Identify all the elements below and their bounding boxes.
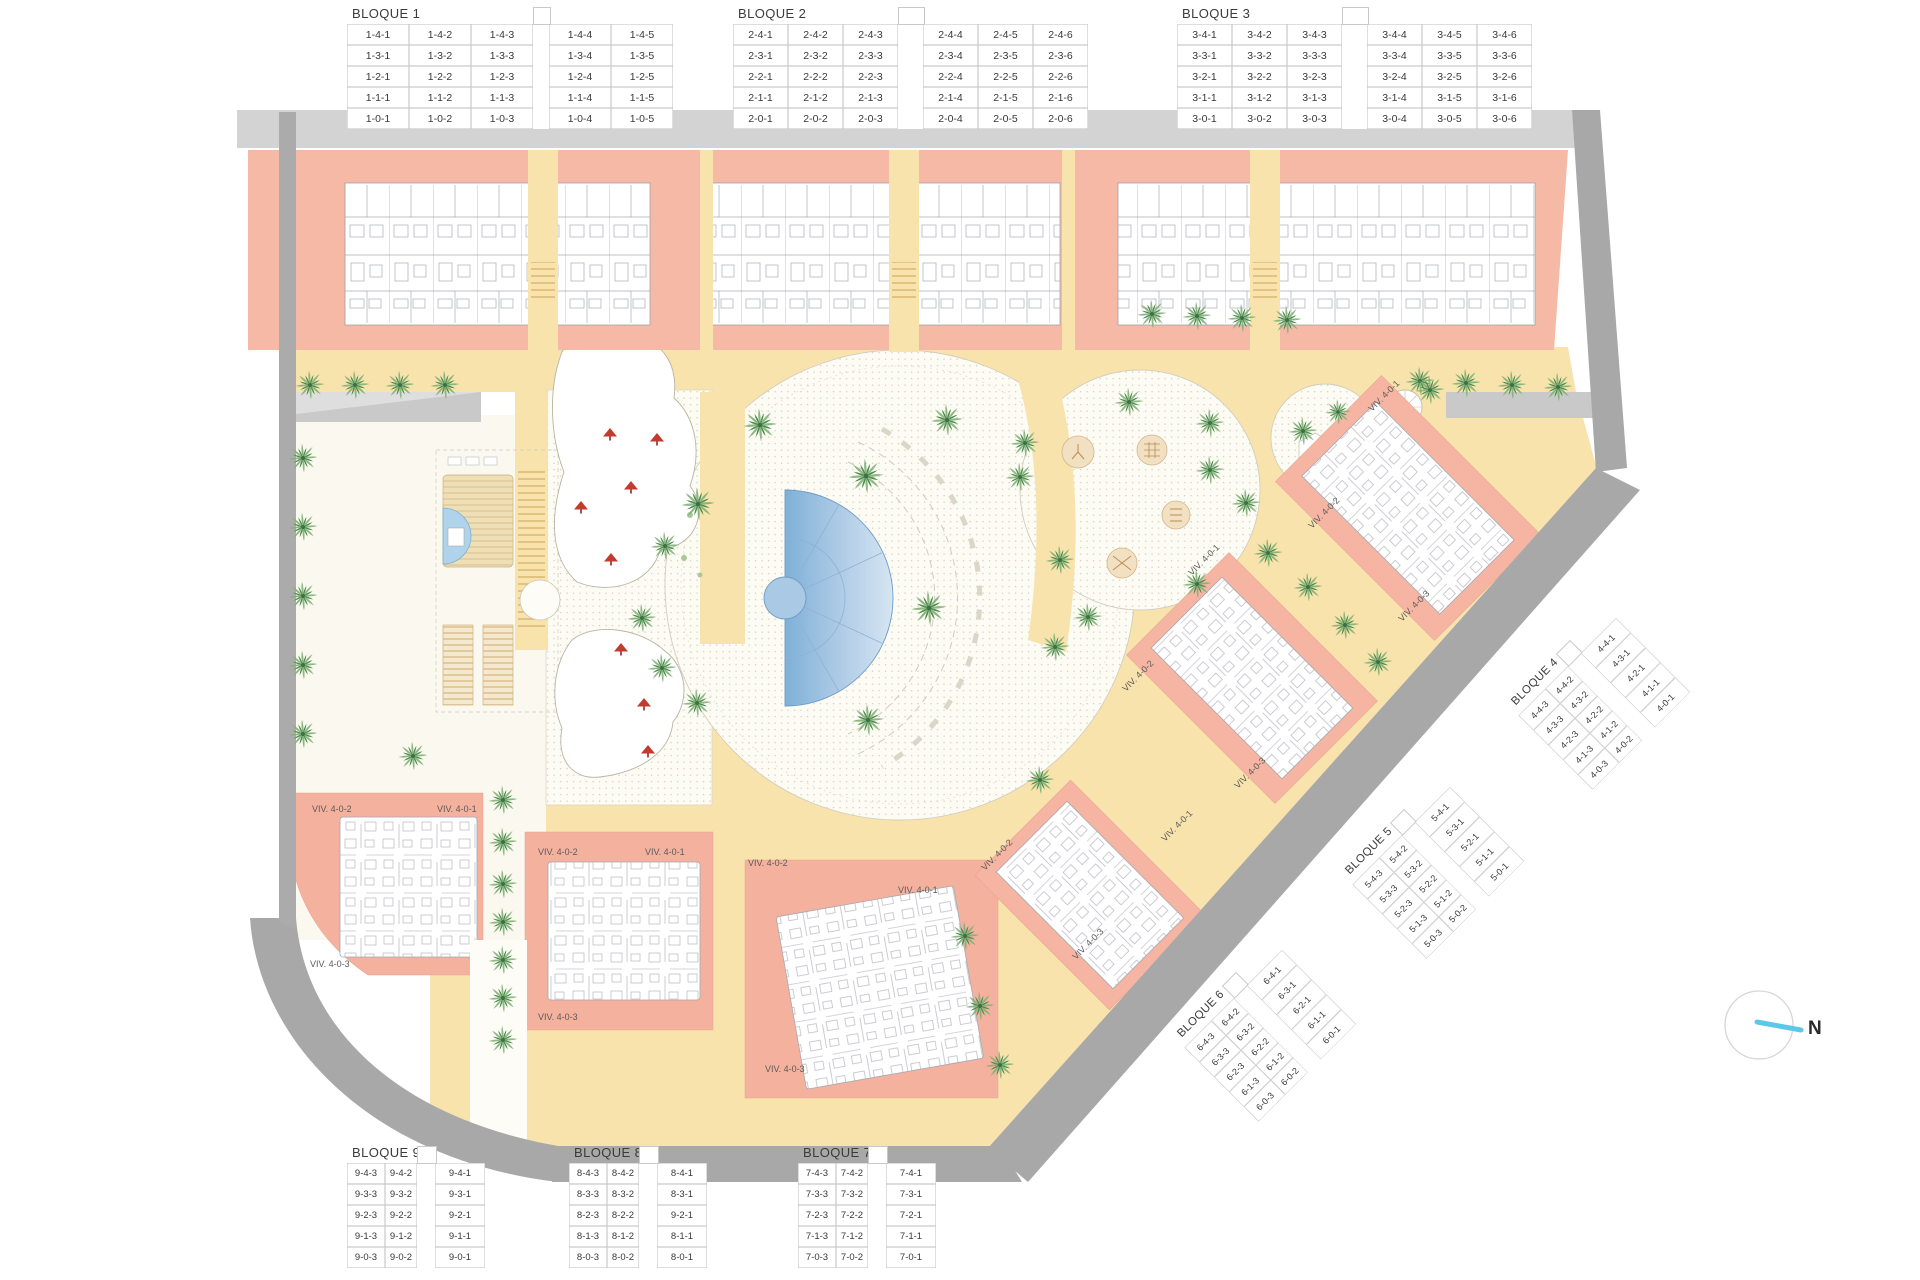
- unit-cell[interactable]: 3-3-3: [1287, 45, 1342, 66]
- unit-cell[interactable]: 9-4-2: [385, 1163, 417, 1184]
- unit-cell[interactable]: 9-2-1: [435, 1205, 485, 1226]
- unit-cell[interactable]: 1-1-5: [611, 87, 673, 108]
- table-gap-cell: [639, 1247, 657, 1268]
- table-title: BLOQUE 1: [352, 6, 707, 24]
- unit-cell[interactable]: 3-1-2: [1232, 87, 1287, 108]
- unit-cell[interactable]: 1-3-4: [549, 45, 611, 66]
- unit-cell[interactable]: 1-4-3: [471, 24, 533, 45]
- table-corner-box: [898, 7, 925, 25]
- unit-cell[interactable]: 7-3-2: [836, 1184, 868, 1205]
- top-building-band: [248, 150, 1568, 352]
- unit-cell[interactable]: 9-4-3: [347, 1163, 385, 1184]
- unit-cell[interactable]: 7-0-2: [836, 1247, 868, 1268]
- unit-cell[interactable]: 1-3-3: [471, 45, 533, 66]
- north-compass: N: [1725, 991, 1822, 1059]
- unit-cell[interactable]: 3-4-2: [1232, 24, 1287, 45]
- unit-cell[interactable]: 1-1-3: [471, 87, 533, 108]
- unit-cell[interactable]: 1-2-2: [409, 66, 471, 87]
- table-gap-cell: [533, 66, 549, 87]
- unit-cell[interactable]: 8-0-3: [569, 1247, 607, 1268]
- table-corner-box: [1342, 7, 1369, 25]
- table-corner-box: [868, 1146, 888, 1164]
- unit-cell[interactable]: 2-0-6: [1033, 108, 1088, 129]
- table-gap-cell: [417, 1226, 435, 1247]
- table-gap-cell: [639, 1205, 657, 1226]
- table-corner-box: [533, 7, 551, 25]
- unit-cell[interactable]: 1-2-3: [471, 66, 533, 87]
- unit-cell[interactable]: 1-2-4: [549, 66, 611, 87]
- unit-table-bloque-9: BLOQUE 9 9-4-39-4-29-4-19-3-39-3-29-3-19…: [347, 1145, 485, 1268]
- plaza-pad: [520, 580, 560, 620]
- table-gap-cell: [898, 66, 923, 87]
- viv-label: VIV. 4-0-3: [538, 1012, 578, 1022]
- unit-cell[interactable]: 2-1-3: [843, 87, 898, 108]
- pergola: [483, 625, 513, 705]
- unit-cell[interactable]: 7-0-1: [886, 1247, 936, 1268]
- unit-cell[interactable]: 3-1-5: [1422, 87, 1477, 108]
- unit-table-bloque-1: BLOQUE 1 1-4-11-4-21-4-31-4-41-4-51-3-11…: [347, 6, 707, 129]
- unit-cell[interactable]: 3-1-4: [1367, 87, 1422, 108]
- unit-cell[interactable]: 3-1-3: [1287, 87, 1342, 108]
- unit-cell[interactable]: 1-1-4: [549, 87, 611, 108]
- table-grid: 1-4-11-4-21-4-31-4-41-4-51-3-11-3-21-3-3…: [347, 24, 707, 129]
- table-gap-cell: [417, 1163, 435, 1184]
- unit-cell[interactable]: 3-2-6: [1477, 66, 1532, 87]
- unit-cell[interactable]: 3-1-1: [1177, 87, 1232, 108]
- unit-cell[interactable]: 2-3-6: [1033, 45, 1088, 66]
- compass-north-label: N: [1808, 1018, 1822, 1039]
- unit-cell[interactable]: 7-3-1: [886, 1184, 936, 1205]
- unit-cell[interactable]: 2-4-6: [1033, 24, 1088, 45]
- unit-cell[interactable]: 1-2-1: [347, 66, 409, 87]
- unit-cell[interactable]: 7-2-1: [886, 1205, 936, 1226]
- table-gap-cell: [639, 1184, 657, 1205]
- unit-cell[interactable]: 1-1-1: [347, 87, 409, 108]
- unit-cell[interactable]: 8-4-2: [607, 1163, 639, 1184]
- unit-cell[interactable]: 1-3-2: [409, 45, 471, 66]
- unit-cell[interactable]: 8-4-1: [657, 1163, 707, 1184]
- table-gap-cell: [417, 1205, 435, 1226]
- unit-cell[interactable]: 2-4-5: [978, 24, 1033, 45]
- table-gap-cell: [639, 1226, 657, 1247]
- unit-cell[interactable]: 1-0-3: [471, 108, 533, 129]
- unit-cell[interactable]: 3-2-2: [1232, 66, 1287, 87]
- unit-cell[interactable]: 3-2-3: [1287, 66, 1342, 87]
- table-gap-cell: [898, 87, 923, 108]
- unit-cell[interactable]: 7-1-3: [798, 1226, 836, 1247]
- unit-cell[interactable]: 3-0-2: [1232, 108, 1287, 129]
- table-gap-cell: [898, 24, 923, 45]
- unit-cell[interactable]: 8-2-2: [607, 1205, 639, 1226]
- table-gap-cell: [868, 1184, 886, 1205]
- unit-cell[interactable]: 3-4-4: [1367, 24, 1422, 45]
- unit-cell[interactable]: 9-1-3: [347, 1226, 385, 1247]
- unit-cell[interactable]: 8-3-2: [607, 1184, 639, 1205]
- unit-cell[interactable]: 8-0-1: [657, 1247, 707, 1268]
- unit-cell[interactable]: 2-3-1: [733, 45, 788, 66]
- table-corner-box: [639, 1146, 659, 1164]
- table-gap-cell: [533, 87, 549, 108]
- table-gap-cell: [639, 1163, 657, 1184]
- unit-table-bloque-3: BLOQUE 3 3-4-13-4-23-4-33-4-43-4-53-4-63…: [1177, 6, 1537, 129]
- viv-label: VIV. 4-0-1: [898, 885, 938, 895]
- viv-label: VIV. 4-0-2: [748, 858, 788, 868]
- unit-cell[interactable]: 1-4-4: [549, 24, 611, 45]
- unit-cell[interactable]: 7-2-2: [836, 1205, 868, 1226]
- unit-cell[interactable]: 2-3-3: [843, 45, 898, 66]
- viv-label: VIV. 4-0-2: [538, 847, 578, 857]
- unit-cell[interactable]: 7-0-3: [798, 1247, 836, 1268]
- unit-cell[interactable]: 3-0-5: [1422, 108, 1477, 129]
- table-gap-cell: [533, 108, 549, 129]
- table-grid: 8-4-38-4-28-4-18-3-38-3-28-3-18-2-38-2-2…: [569, 1163, 707, 1268]
- unit-cell[interactable]: 9-4-1: [435, 1163, 485, 1184]
- unit-cell[interactable]: 1-0-2: [409, 108, 471, 129]
- unit-cell[interactable]: 8-3-1: [657, 1184, 707, 1205]
- unit-cell[interactable]: 3-4-1: [1177, 24, 1232, 45]
- unit-cell[interactable]: 2-1-6: [1033, 87, 1088, 108]
- unit-cell[interactable]: 7-3-3: [798, 1184, 836, 1205]
- unit-cell[interactable]: 1-3-5: [611, 45, 673, 66]
- table-gap-cell: [1342, 45, 1367, 66]
- unit-cell[interactable]: 2-3-2: [788, 45, 843, 66]
- unit-cell[interactable]: 7-1-2: [836, 1226, 868, 1247]
- unit-cell[interactable]: 3-2-4: [1367, 66, 1422, 87]
- unit-cell[interactable]: 1-4-1: [347, 24, 409, 45]
- unit-cell[interactable]: 3-0-4: [1367, 108, 1422, 129]
- table-gap-cell: [868, 1247, 886, 1268]
- pergola: [443, 625, 473, 705]
- table-gap-cell: [1342, 66, 1367, 87]
- unit-cell[interactable]: 2-0-5: [978, 108, 1033, 129]
- unit-cell[interactable]: 3-0-6: [1477, 108, 1532, 129]
- table-grid: 7-4-37-4-27-4-17-3-37-3-27-3-17-2-37-2-2…: [798, 1163, 936, 1268]
- unit-cell[interactable]: 2-1-4: [923, 87, 978, 108]
- unit-cell[interactable]: 8-1-3: [569, 1226, 607, 1247]
- viv-label: VIV. 4-0-1: [437, 804, 477, 814]
- unit-cell[interactable]: 1-1-2: [409, 87, 471, 108]
- table-gap-cell: [898, 108, 923, 129]
- unit-cell[interactable]: 2-2-4: [923, 66, 978, 87]
- unit-cell[interactable]: 1-3-1: [347, 45, 409, 66]
- unit-cell[interactable]: 9-1-2: [385, 1226, 417, 1247]
- viv-label: VIV. 4-0-3: [310, 959, 350, 969]
- unit-cell[interactable]: 9-2-2: [385, 1205, 417, 1226]
- unit-cell[interactable]: 8-0-2: [607, 1247, 639, 1268]
- viv-label: VIV. 4-0-3: [765, 1064, 805, 1074]
- table-gap-cell: [417, 1247, 435, 1268]
- unit-cell[interactable]: 9-0-3: [347, 1247, 385, 1268]
- table-gap-cell: [868, 1163, 886, 1184]
- unit-cell[interactable]: 9-2-1: [657, 1205, 707, 1226]
- unit-cell[interactable]: 3-2-1: [1177, 66, 1232, 87]
- unit-cell[interactable]: 8-3-3: [569, 1184, 607, 1205]
- table-grid: 3-4-13-4-23-4-33-4-43-4-53-4-63-3-13-3-2…: [1177, 24, 1537, 129]
- viv-label: VIV. 4-0-1: [645, 847, 685, 857]
- table-gap-cell: [868, 1205, 886, 1226]
- unit-cell[interactable]: 3-3-2: [1232, 45, 1287, 66]
- unit-cell[interactable]: 2-1-2: [788, 87, 843, 108]
- unit-cell[interactable]: 2-2-2: [788, 66, 843, 87]
- unit-table-bloque-8: BLOQUE 8 8-4-38-4-28-4-18-3-38-3-28-3-18…: [569, 1145, 707, 1268]
- unit-cell[interactable]: 2-2-3: [843, 66, 898, 87]
- table-grid: 9-4-39-4-29-4-19-3-39-3-29-3-19-2-39-2-2…: [347, 1163, 485, 1268]
- table-gap-cell: [898, 45, 923, 66]
- unit-cell[interactable]: 2-0-1: [733, 108, 788, 129]
- unit-cell[interactable]: 8-4-3: [569, 1163, 607, 1184]
- unit-cell[interactable]: 7-4-2: [836, 1163, 868, 1184]
- table-grid: 2-4-12-4-22-4-32-4-42-4-52-4-62-3-12-3-2…: [733, 24, 1093, 129]
- pool-island: [764, 577, 806, 619]
- unit-cell[interactable]: 8-1-1: [657, 1226, 707, 1247]
- unit-cell[interactable]: 3-3-5: [1422, 45, 1477, 66]
- unit-cell[interactable]: 2-3-5: [978, 45, 1033, 66]
- unit-cell[interactable]: 1-0-5: [611, 108, 673, 129]
- left-sidewalk: [279, 112, 296, 930]
- unit-cell[interactable]: 2-2-6: [1033, 66, 1088, 87]
- unit-cell[interactable]: 1-0-1: [347, 108, 409, 129]
- unit-cell[interactable]: 3-0-1: [1177, 108, 1232, 129]
- unit-cell[interactable]: 2-2-5: [978, 66, 1033, 87]
- unit-cell[interactable]: 2-4-1: [733, 24, 788, 45]
- unit-cell[interactable]: 1-4-5: [611, 24, 673, 45]
- unit-cell[interactable]: 2-4-2: [788, 24, 843, 45]
- unit-cell[interactable]: 9-0-1: [435, 1247, 485, 1268]
- unit-cell[interactable]: 8-2-3: [569, 1205, 607, 1226]
- unit-cell[interactable]: 1-4-2: [409, 24, 471, 45]
- unit-cell[interactable]: 9-2-3: [347, 1205, 385, 1226]
- unit-cell[interactable]: 2-1-5: [978, 87, 1033, 108]
- table-gap-cell: [1342, 24, 1367, 45]
- table-gap-cell: [1342, 108, 1367, 129]
- table-gap-cell: [868, 1226, 886, 1247]
- unit-cell[interactable]: 3-0-3: [1287, 108, 1342, 129]
- unit-cell[interactable]: 7-1-1: [886, 1226, 936, 1247]
- unit-cell[interactable]: 3-2-5: [1422, 66, 1477, 87]
- unit-table-bloque-2: BLOQUE 2 2-4-12-4-22-4-32-4-42-4-52-4-62…: [733, 6, 1093, 129]
- unit-cell[interactable]: 3-3-1: [1177, 45, 1232, 66]
- unit-cell[interactable]: 2-4-3: [843, 24, 898, 45]
- unit-cell[interactable]: 2-3-4: [923, 45, 978, 66]
- unit-cell[interactable]: 2-1-1: [733, 87, 788, 108]
- table-gap-cell: [1342, 87, 1367, 108]
- unit-cell[interactable]: 7-4-1: [886, 1163, 936, 1184]
- unit-cell[interactable]: 2-0-3: [843, 108, 898, 129]
- unit-cell[interactable]: 3-3-4: [1367, 45, 1422, 66]
- unit-cell[interactable]: 9-1-1: [435, 1226, 485, 1247]
- unit-cell[interactable]: 1-0-4: [549, 108, 611, 129]
- viv-label: VIV. 4-0-2: [312, 804, 352, 814]
- unit-cell[interactable]: 1-2-5: [611, 66, 673, 87]
- unit-cell[interactable]: 3-4-6: [1477, 24, 1532, 45]
- unit-cell[interactable]: 2-0-2: [788, 108, 843, 129]
- unit-table-bloque-7: BLOQUE 7 7-4-37-4-27-4-17-3-37-3-27-3-17…: [798, 1145, 936, 1268]
- unit-cell[interactable]: 7-2-3: [798, 1205, 836, 1226]
- unit-cell[interactable]: 3-1-6: [1477, 87, 1532, 108]
- unit-cell[interactable]: 8-1-2: [607, 1226, 639, 1247]
- unit-cell[interactable]: 2-2-1: [733, 66, 788, 87]
- unit-cell[interactable]: 9-0-2: [385, 1247, 417, 1268]
- unit-cell[interactable]: 2-4-4: [923, 24, 978, 45]
- table-gap-cell: [533, 24, 549, 45]
- unit-cell[interactable]: 9-3-2: [385, 1184, 417, 1205]
- table-gap-cell: [533, 45, 549, 66]
- site-plan-page: VIV. 4-0-2 VIV. 4-0-1 VIV. 4-0-3 VIV. 4-…: [0, 0, 1920, 1280]
- unit-cell[interactable]: 7-4-3: [798, 1163, 836, 1184]
- unit-cell[interactable]: 3-3-6: [1477, 45, 1532, 66]
- unit-cell[interactable]: 9-3-3: [347, 1184, 385, 1205]
- unit-cell[interactable]: 3-4-5: [1422, 24, 1477, 45]
- unit-cell[interactable]: 9-3-1: [435, 1184, 485, 1205]
- table-gap-cell: [417, 1184, 435, 1205]
- table-corner-box: [417, 1146, 437, 1164]
- unit-cell[interactable]: 2-0-4: [923, 108, 978, 129]
- unit-cell[interactable]: 3-4-3: [1287, 24, 1342, 45]
